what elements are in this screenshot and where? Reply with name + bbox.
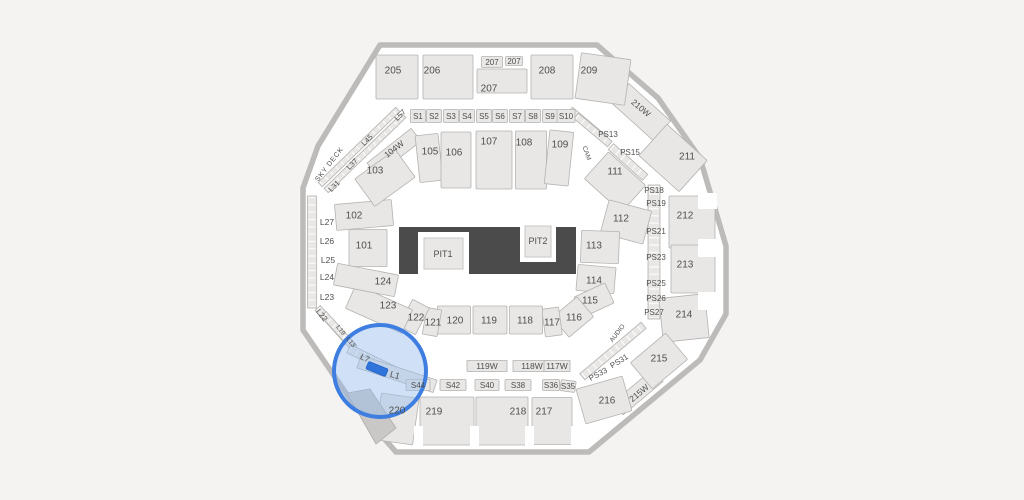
label-l26: L26 (320, 236, 334, 246)
section-109[interactable] (544, 130, 574, 186)
section-label-206: 206 (424, 66, 441, 77)
section-label-209: 209 (581, 66, 598, 77)
section-label-S42: S42 (446, 381, 461, 390)
section-102[interactable] (334, 200, 393, 231)
label-ps25: PS25 (646, 279, 666, 288)
section-label-117: 117 (544, 318, 560, 329)
section-label-215: 215 (651, 354, 668, 365)
section-label-105: 105 (422, 147, 439, 158)
section-106[interactable] (441, 132, 471, 188)
section-label-207: 207 (507, 57, 521, 66)
section-label-212: 212 (677, 211, 694, 222)
section-label-S1: S1 (413, 112, 423, 121)
section-217[interactable] (532, 398, 572, 445)
section-label-111: 111 (607, 167, 623, 178)
section-label-207: 207 (481, 84, 498, 95)
loge-strip[interactable] (308, 196, 317, 308)
section-label-107: 107 (481, 137, 498, 148)
section-label-113: 113 (586, 241, 602, 252)
section-208[interactable] (531, 55, 573, 99)
section-label-208: 208 (539, 66, 556, 77)
section-label-S35: S35 (561, 382, 576, 391)
section-label-122: 122 (408, 313, 425, 324)
section-206[interactable] (423, 55, 473, 99)
section-label-108: 108 (516, 138, 533, 149)
section-label-205: 205 (385, 66, 402, 77)
section-105[interactable] (415, 133, 443, 182)
section-label-S2: S2 (429, 112, 439, 121)
section-label-219: 219 (426, 407, 443, 418)
section-label-119: 119 (481, 316, 497, 327)
label-l23: L23 (320, 292, 334, 302)
section-label-115: 115 (582, 296, 598, 307)
section-218[interactable] (476, 397, 528, 445)
section-label-118: 118 (517, 316, 533, 327)
section-label-214: 214 (676, 310, 693, 321)
section-label-S5: S5 (479, 112, 489, 121)
label-stage: STAGE (485, 245, 506, 251)
section-label-220: 220 (389, 406, 406, 417)
section-label-S4: S4 (462, 112, 472, 121)
section-label-112: 112 (613, 214, 629, 225)
label-119w: 119W (476, 361, 498, 371)
section-label-S3: S3 (446, 112, 456, 121)
section-label-S7: S7 (512, 112, 522, 121)
seating-map-canvas[interactable]: 2052062072072072082092112122132142152162… (0, 0, 1024, 500)
arena-seating-map: 2052062072072072082092112122132142152162… (0, 0, 1024, 500)
label-l24: L24 (320, 272, 334, 282)
label-ps23: PS23 (646, 253, 666, 262)
section-label-S9: S9 (545, 112, 555, 121)
section-209[interactable] (575, 53, 631, 106)
label-ps26: PS26 (646, 294, 666, 303)
section-205[interactable] (376, 55, 418, 99)
label-ps13: PS13 (598, 130, 618, 139)
section-label-121: 121 (425, 318, 442, 329)
label-117w: 117W (546, 361, 568, 371)
section-label-120: 120 (447, 316, 464, 327)
section-219[interactable] (420, 397, 474, 445)
section-label-S44: S44 (411, 381, 426, 390)
label-l25: L25 (321, 255, 335, 265)
section-label-S6: S6 (495, 112, 505, 121)
label-ps21: PS21 (646, 227, 666, 236)
label-ps18: PS18 (644, 186, 664, 195)
section-label-106: 106 (446, 148, 463, 159)
section-label-S40: S40 (480, 381, 495, 390)
section-label-102: 102 (346, 211, 363, 222)
section-label-114: 114 (586, 276, 602, 287)
label-pit1: PIT1 (433, 249, 452, 259)
label-ps19: PS19 (646, 199, 666, 208)
section-label-124: 124 (375, 277, 392, 288)
section-label-S38: S38 (511, 381, 526, 390)
section-label-101: 101 (356, 241, 373, 252)
label-pit2: PIT2 (528, 236, 547, 246)
section-label-213: 213 (677, 260, 694, 271)
section-label-116: 116 (566, 313, 582, 324)
label-ps27: PS27 (644, 308, 664, 317)
section-label-211: 211 (679, 152, 695, 163)
section-label-S36: S36 (544, 381, 559, 390)
label-l27: L27 (320, 217, 334, 227)
section-label-123: 123 (380, 301, 397, 312)
section-label-103: 103 (367, 166, 384, 177)
section-label-207: 207 (485, 58, 499, 67)
label-ps15: PS15 (620, 148, 640, 157)
section-label-217: 217 (536, 407, 553, 418)
section-label-218: 218 (510, 407, 527, 418)
label-118w: 118W (521, 361, 543, 371)
section-label-S8: S8 (528, 112, 538, 121)
section-label-109: 109 (552, 140, 569, 151)
section-label-216: 216 (599, 396, 616, 407)
section-label-S10: S10 (559, 112, 574, 121)
